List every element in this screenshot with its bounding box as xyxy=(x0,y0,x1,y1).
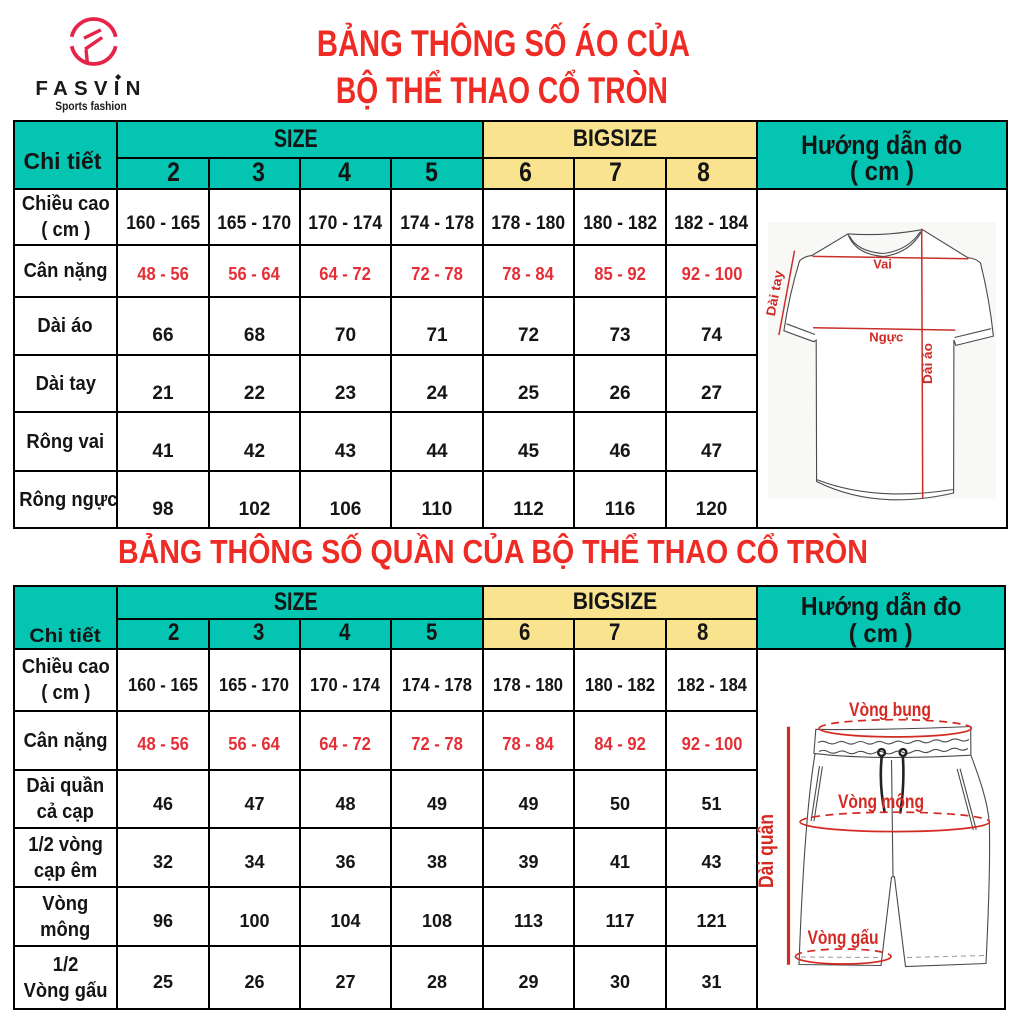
svg-text:Vòng mông: Vòng mông xyxy=(838,792,924,813)
svg-text:Vòng bụng: Vòng bụng xyxy=(849,700,931,721)
svg-text:Ngực: Ngực xyxy=(869,330,903,345)
svg-text:Vai: Vai xyxy=(873,257,892,272)
svg-text:Dài quần: Dài quần xyxy=(757,814,778,888)
svg-text:Dài áo: Dài áo xyxy=(920,343,935,384)
svg-text:Vòng gấu: Vòng gấu xyxy=(808,928,879,949)
